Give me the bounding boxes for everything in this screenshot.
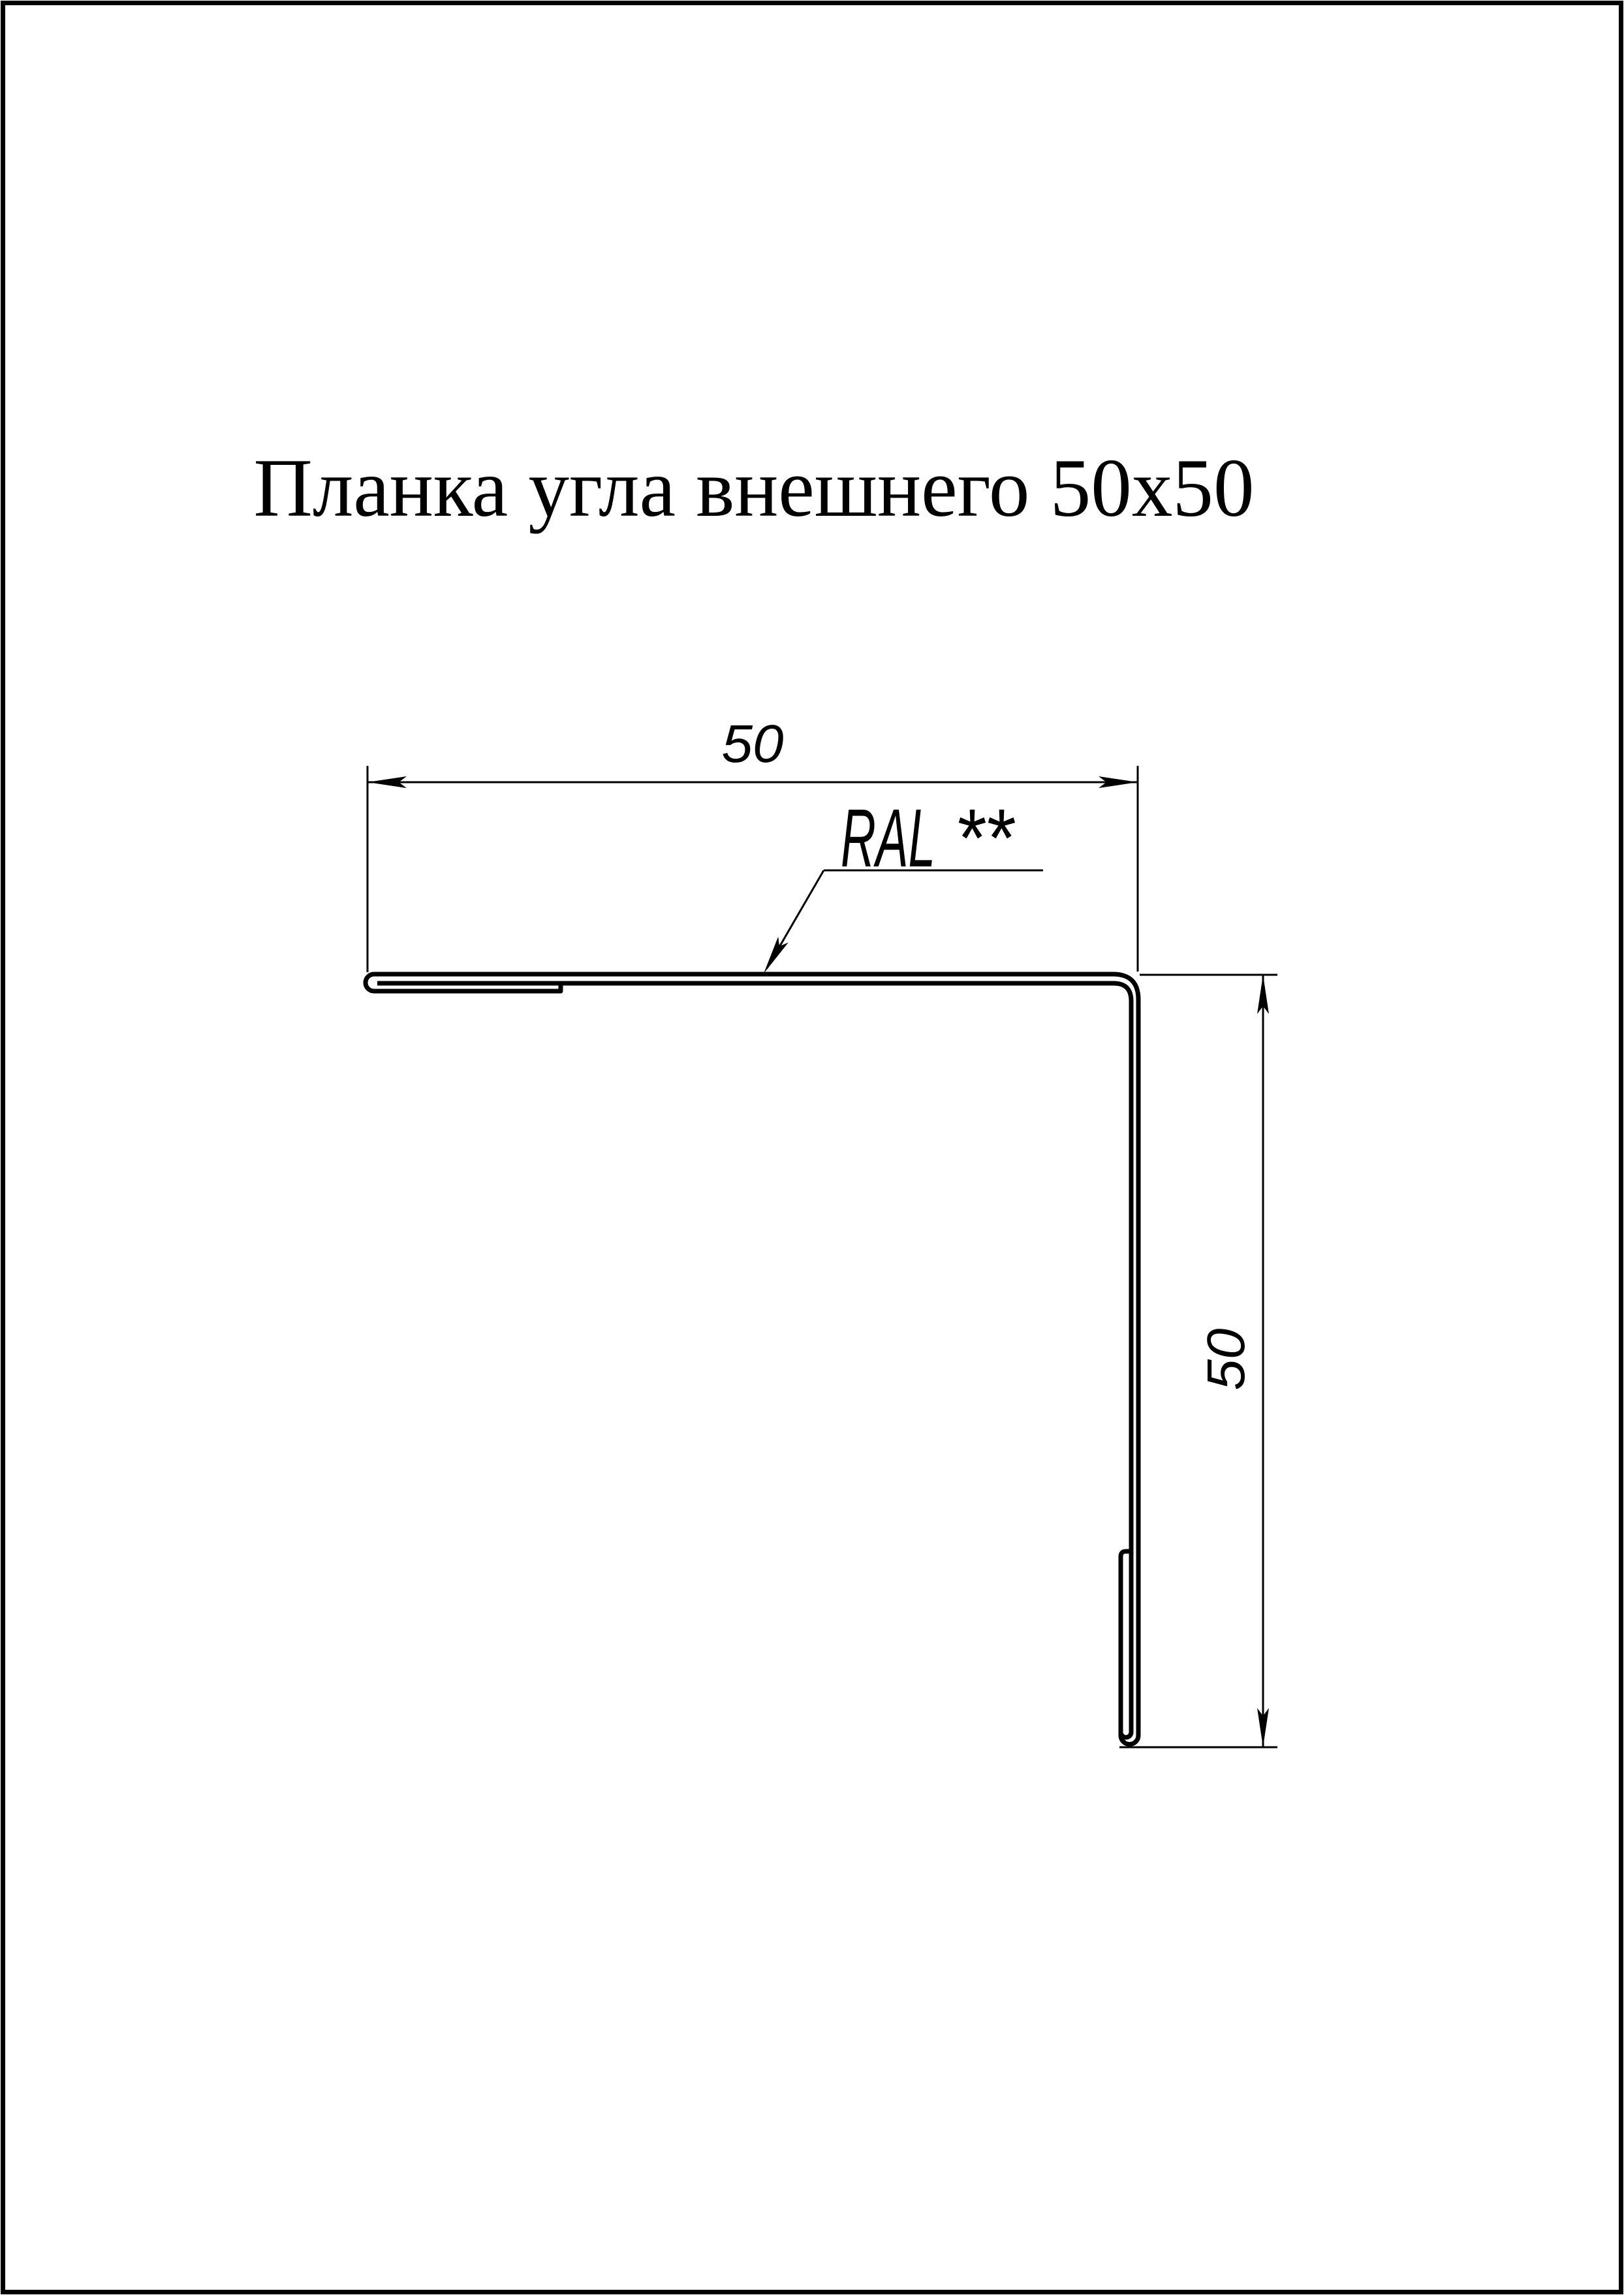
dim-width-value: 50 — [722, 714, 784, 774]
drawing-page: Планка угла внешнего 50x50 50 50 RAL ** — [0, 0, 1624, 2295]
technical-drawing: Планка угла внешнего 50x50 50 50 RAL ** — [0, 0, 1624, 2295]
profile-outer-contour — [374, 974, 1138, 1744]
page-border — [3, 3, 1621, 2292]
profile-inner-contour — [377, 983, 1131, 1737]
ral-callout-arrow — [758, 937, 789, 977]
dim-height-value: 50 — [1196, 1329, 1256, 1391]
drawing-title: Планка угла внешнего 50x50 — [254, 443, 1255, 534]
